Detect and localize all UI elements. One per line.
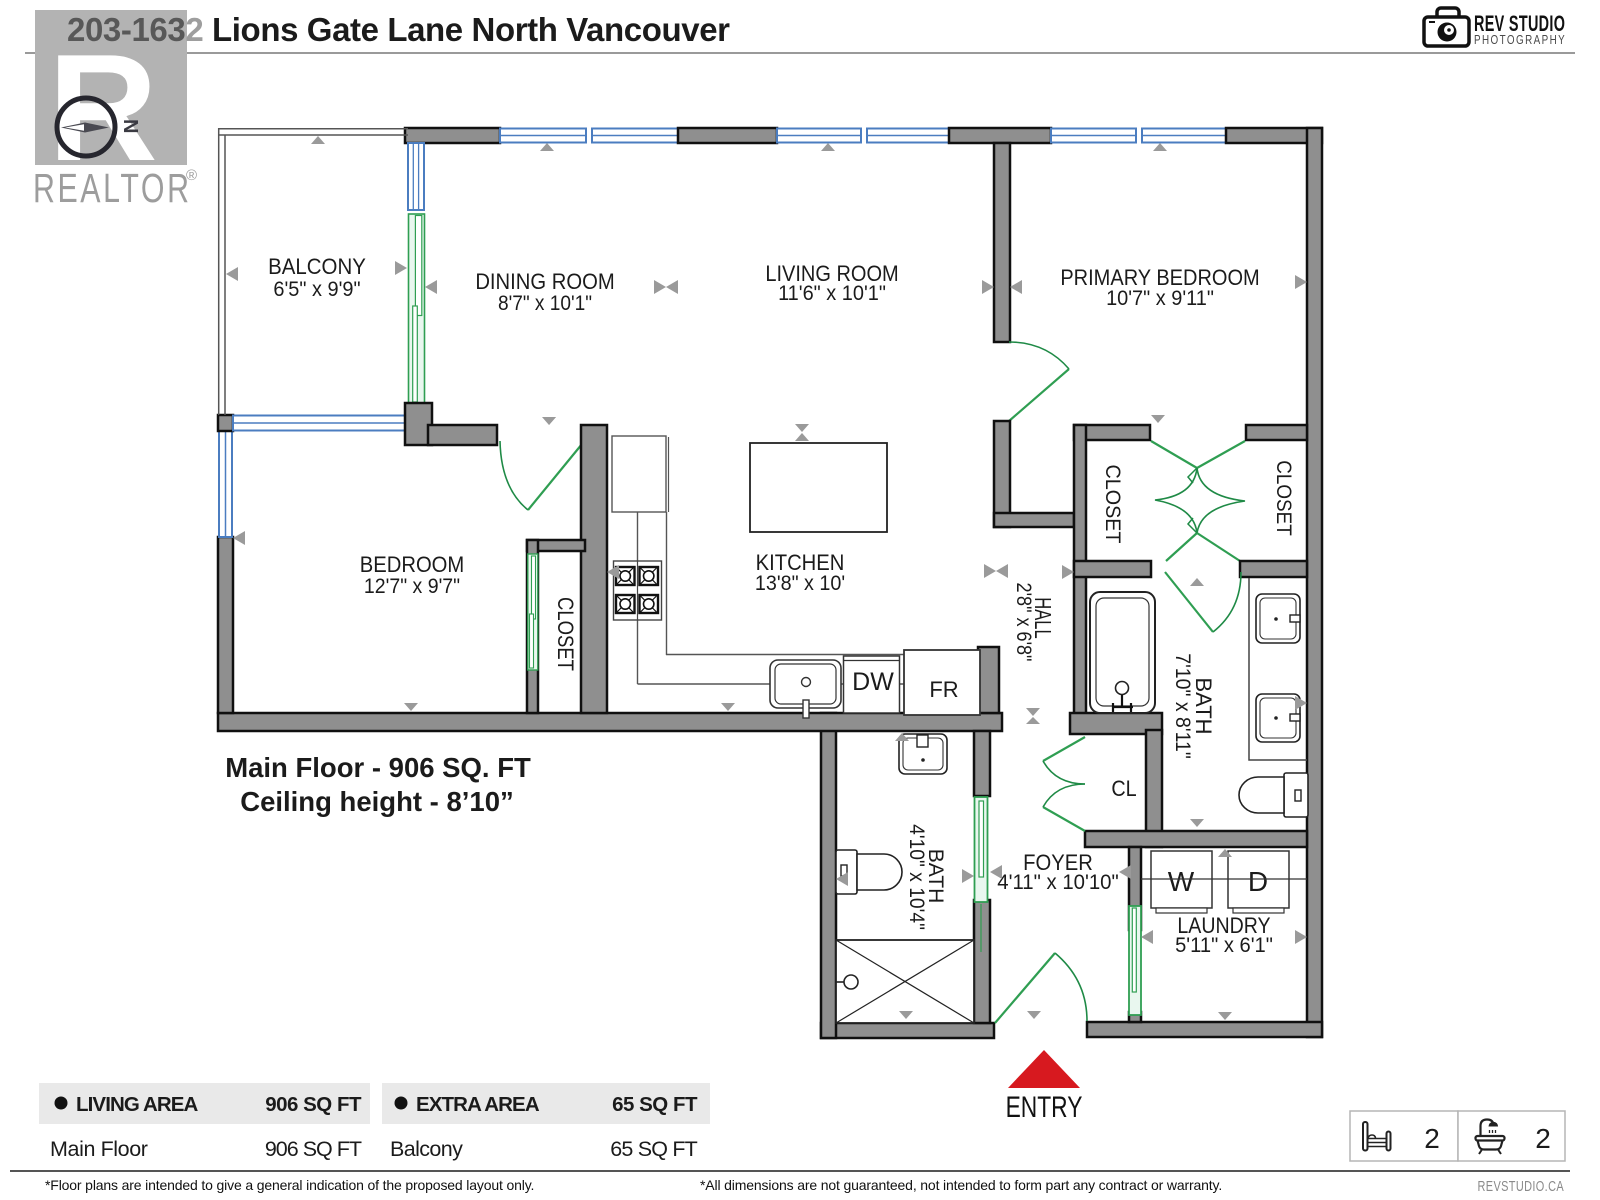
svg-text:BEDROOM: BEDROOM [360, 553, 465, 577]
svg-text:W: W [1168, 866, 1195, 897]
svg-text:8'7" x 10'1": 8'7" x 10'1" [498, 292, 592, 315]
svg-text:CLOSET: CLOSET [1101, 465, 1124, 544]
svg-text:N: N [119, 119, 141, 133]
svg-text:REALTOR: REALTOR [33, 164, 192, 211]
svg-text:Main Floor - 906 SQ. FT: Main Floor - 906 SQ. FT [225, 752, 531, 783]
svg-text:7'10" x 8'11": 7'10" x 8'11" [1171, 653, 1194, 759]
svg-text:65 SQ FT: 65 SQ FT [610, 1137, 697, 1161]
svg-text:5'11" x 6'1": 5'11" x 6'1" [1175, 934, 1273, 957]
svg-text:REV STUDIO: REV STUDIO [1474, 11, 1565, 36]
svg-text:13'8" x 10': 13'8" x 10' [755, 572, 845, 595]
svg-text:REVSTUDIO.CA: REVSTUDIO.CA [1478, 1177, 1564, 1194]
svg-text:D: D [1248, 866, 1268, 897]
svg-text:906 SQ FT: 906 SQ FT [265, 1093, 362, 1116]
svg-text:CLOSET: CLOSET [1272, 460, 1295, 536]
svg-text:906 SQ FT: 906 SQ FT [265, 1137, 362, 1161]
svg-text:FR: FR [929, 677, 958, 702]
svg-text:DW: DW [852, 668, 894, 696]
svg-text:6'5" x 9'9": 6'5" x 9'9" [273, 278, 360, 302]
svg-text:4'11" x 10'10": 4'11" x 10'10" [997, 871, 1118, 894]
svg-text:2: 2 [1535, 1123, 1551, 1154]
svg-text:PHOTOGRAPHY: PHOTOGRAPHY [1474, 34, 1566, 47]
svg-text:ENTRY: ENTRY [1006, 1090, 1083, 1124]
svg-text:2'8" x 6'8": 2'8" x 6'8" [1012, 583, 1036, 662]
svg-text:CL: CL [1111, 777, 1136, 801]
svg-text:*Floor plans are intended to g: *Floor plans are intended to give a gene… [45, 1177, 534, 1193]
svg-text:CLOSET: CLOSET [553, 597, 577, 671]
svg-text:®: ® [186, 167, 197, 184]
svg-text:Ceiling height - 8’10”: Ceiling height - 8’10” [240, 786, 514, 817]
svg-text:EXTRA AREA: EXTRA AREA [416, 1093, 540, 1116]
svg-text:11'6" x 10'1": 11'6" x 10'1" [778, 282, 886, 306]
svg-text:65 SQ FT: 65 SQ FT [612, 1093, 698, 1116]
svg-text:LIVING AREA: LIVING AREA [76, 1093, 199, 1116]
svg-text:2: 2 [1424, 1123, 1440, 1154]
svg-text:*All dimensions are not guaran: *All dimensions are not guaranteed, not … [700, 1177, 1222, 1193]
svg-text:BATH: BATH [1191, 677, 1216, 734]
svg-text:203-1632 Lions Gate Lane North: 203-1632 Lions Gate Lane North Vancouver [67, 11, 730, 48]
svg-text:BALCONY: BALCONY [268, 254, 366, 279]
svg-text:Main Floor: Main Floor [50, 1137, 148, 1161]
svg-text:10'7" x 9'11": 10'7" x 9'11" [1106, 287, 1214, 311]
svg-text:DINING ROOM: DINING ROOM [475, 270, 614, 294]
svg-text:Balcony: Balcony [390, 1137, 463, 1161]
svg-text:4'10" x 10'4": 4'10" x 10'4" [905, 824, 928, 930]
svg-text:12'7" x 9'7": 12'7" x 9'7" [364, 575, 460, 598]
